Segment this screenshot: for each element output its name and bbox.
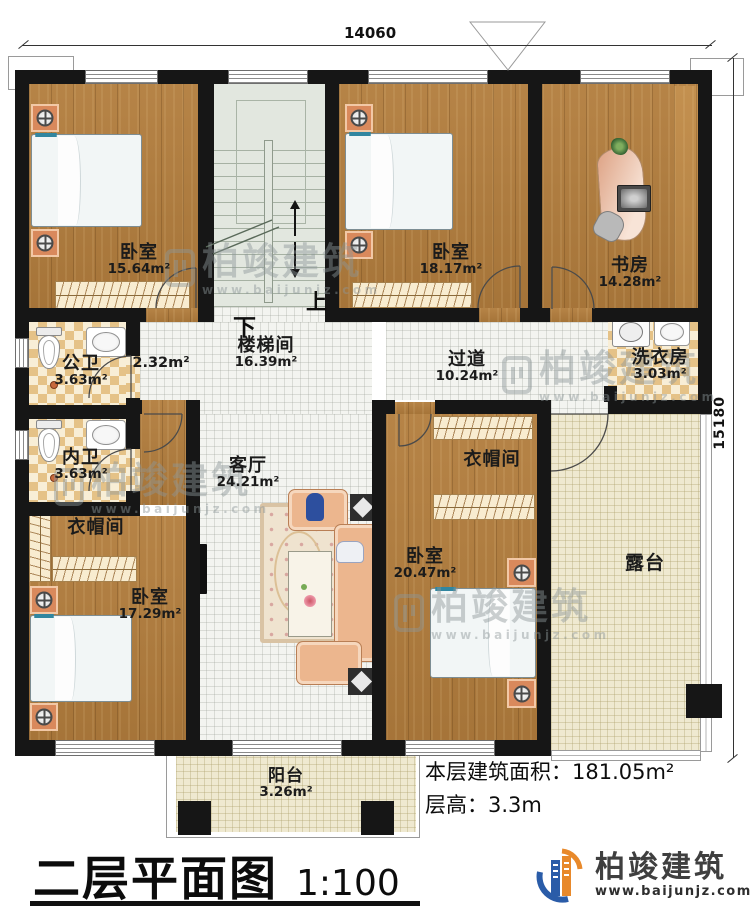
floor-area-stat: 本层建筑面积：181.05m² — [425, 756, 674, 786]
nightstand — [345, 231, 373, 259]
computer-monitor — [617, 185, 651, 212]
wall — [435, 400, 537, 414]
stair-stringer — [264, 140, 273, 303]
dimension-top-value: 14060 — [344, 24, 396, 42]
wall — [15, 740, 55, 756]
floor-door-patch — [126, 449, 140, 491]
wall — [342, 740, 405, 756]
study-shelf-strip — [674, 86, 698, 308]
lamp-icon — [36, 592, 53, 609]
pillow — [35, 133, 57, 135]
wall — [495, 740, 551, 756]
nightstand — [345, 104, 373, 132]
dimension-right-value: 15180 — [712, 396, 728, 450]
bed-sheet-fold — [371, 135, 393, 228]
wardrobe — [352, 282, 472, 308]
wall — [126, 419, 140, 449]
brand-name: 柏竣建筑 — [595, 851, 750, 884]
bed-double — [30, 615, 132, 702]
nightstand — [31, 229, 59, 257]
drawing-title-text: 二层平面图 — [33, 840, 278, 909]
wall — [325, 84, 339, 322]
wall — [198, 84, 214, 322]
room-label-laundry: 洗衣房 3.03m² — [632, 348, 689, 382]
window — [580, 70, 670, 84]
window — [15, 430, 29, 460]
sink — [654, 318, 690, 346]
floor-area-value: 181.05m² — [572, 760, 674, 784]
room-label-living: 客厅 24.21m² — [217, 456, 280, 490]
wall — [608, 400, 698, 414]
window — [15, 338, 29, 368]
wall — [604, 386, 617, 402]
floor-suite-lobby — [140, 400, 186, 505]
wall — [155, 740, 232, 756]
drawing-title: 二层平面图 1:100 — [33, 840, 400, 909]
floor-terrace — [551, 414, 700, 752]
sliding-door — [232, 740, 342, 756]
bed-sheet-fold — [488, 590, 510, 676]
stair-arrow-down-icon — [294, 242, 296, 274]
wall — [339, 308, 479, 322]
side-table — [348, 668, 375, 695]
brand-logo: 柏竣建筑 www.baijunjz.com — [531, 846, 750, 904]
plant — [611, 138, 628, 155]
wall — [372, 400, 395, 414]
floor-door-patch — [479, 308, 520, 322]
wall — [126, 400, 142, 414]
lamp-icon — [513, 564, 530, 581]
room-label-private-bath: 内卫 3.63m² — [54, 448, 107, 482]
window — [368, 70, 488, 84]
wall — [372, 414, 386, 756]
floor-door-patch — [146, 308, 198, 322]
lamp-icon — [37, 235, 54, 252]
lamp-icon — [351, 110, 368, 127]
pillow — [34, 614, 54, 616]
pillow — [349, 134, 371, 136]
nightstand — [30, 586, 58, 614]
floor-terrace-door — [551, 400, 608, 414]
pillow — [435, 589, 456, 591]
bed-double — [31, 134, 142, 227]
wall — [698, 70, 712, 414]
column — [178, 801, 211, 835]
wall — [186, 400, 200, 756]
wardrobe — [433, 416, 533, 440]
wardrobe — [52, 556, 137, 582]
room-label-public-bath: 公卫 3.63m² — [54, 354, 107, 388]
wall — [542, 308, 550, 322]
room-label-cloak-right: 衣帽间 — [464, 450, 521, 469]
floor-height-label: 层高： — [425, 793, 488, 817]
floor-height-stat: 层高：3.3m — [425, 789, 542, 819]
floor-area-label: 本层建筑面积： — [425, 760, 572, 784]
bed-sheet-fold — [58, 136, 81, 225]
bed-double — [430, 588, 536, 678]
wall — [15, 308, 146, 322]
wall — [592, 308, 712, 322]
room-label-cloak-left: 衣帽间 — [68, 518, 125, 537]
staircase — [214, 84, 325, 307]
window — [405, 740, 495, 756]
room-label-bedroom-bm: 卧室 20.47m² — [394, 547, 457, 581]
room-label-vestibule: 2.32m² — [132, 356, 189, 372]
brand-logo-icon — [531, 846, 587, 904]
wardrobe — [433, 494, 535, 520]
dimension-line-top — [22, 45, 712, 46]
sink — [86, 420, 126, 450]
room-label-bedroom-tm: 卧室 18.17m² — [420, 243, 483, 277]
stair-down-label: 下 — [233, 308, 256, 342]
lamp-icon — [37, 110, 54, 127]
wall — [126, 491, 140, 502]
nightstand — [30, 703, 58, 731]
lamp-icon — [513, 685, 530, 702]
pillow — [35, 135, 57, 137]
column — [361, 801, 394, 835]
window — [228, 70, 308, 84]
wall — [537, 400, 551, 752]
wall — [528, 84, 542, 322]
nightstand — [507, 679, 536, 708]
nightstand — [507, 558, 536, 587]
floor-height-value: 3.3m — [488, 793, 542, 817]
room-label-study: 书房 14.28m² — [599, 256, 662, 290]
pillow — [349, 132, 371, 134]
room-label-balcony: 阳台 3.26m² — [259, 767, 312, 800]
person — [336, 541, 364, 563]
wardrobe — [29, 508, 51, 582]
lamp-icon — [351, 237, 368, 254]
room-label-bedroom-bl: 卧室 17.29m² — [119, 588, 182, 622]
nightstand — [31, 104, 59, 132]
wall — [15, 405, 140, 419]
room-label-terrace: 露台 — [625, 553, 665, 574]
stair-arrow-up-icon — [294, 204, 296, 236]
wall — [520, 308, 528, 322]
window — [85, 70, 158, 84]
dimension-line-right — [733, 58, 734, 758]
room-label-bedroom-tl: 卧室 15.64m² — [108, 243, 171, 277]
pillow — [435, 587, 456, 589]
brand-url: www.baijunjz.com — [595, 884, 750, 899]
lamp-icon — [36, 709, 53, 726]
floor-door-patch — [550, 308, 592, 322]
wardrobe — [55, 281, 190, 309]
room-label-corridor: 过道 10.24m² — [436, 350, 499, 384]
wall — [15, 502, 140, 516]
coffee-table — [288, 551, 332, 637]
window — [55, 740, 155, 756]
person — [306, 493, 324, 521]
floor-plan: 柏竣建筑 www.baijunjz.com 柏竣建筑 www.baijunjz.… — [0, 0, 750, 921]
bed-sheet-fold — [55, 617, 76, 700]
stair-up-label: 上 — [306, 286, 327, 316]
pillow — [34, 616, 54, 618]
title-underline — [30, 901, 420, 906]
wall — [126, 322, 140, 356]
bed-double — [345, 133, 453, 230]
column — [686, 684, 722, 718]
drawing-scale: 1:100 — [296, 863, 400, 904]
